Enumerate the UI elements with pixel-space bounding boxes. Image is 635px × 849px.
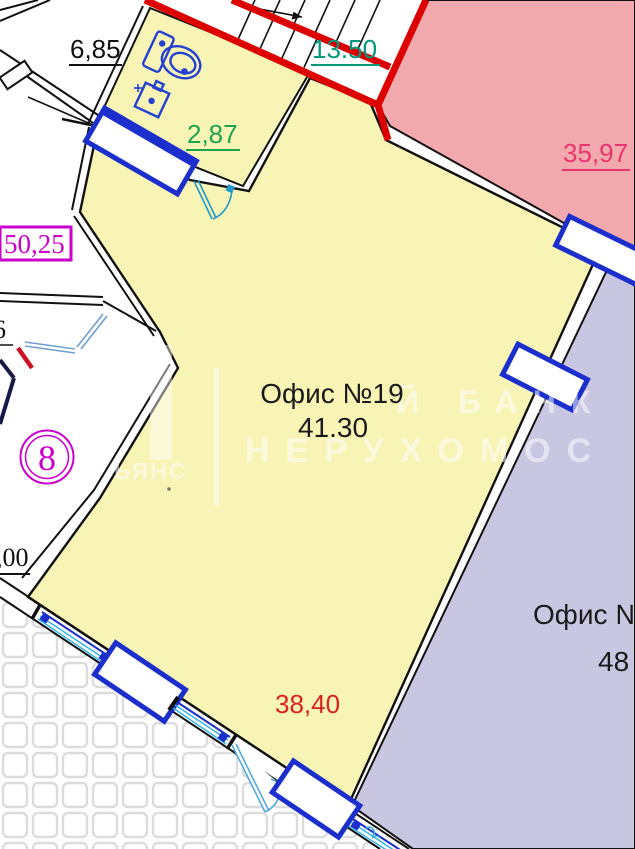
dim-top-left-room: 6,85 <box>70 34 121 64</box>
watermark-line1: Й БАНК <box>396 384 605 420</box>
dim-partial-small: 6 <box>0 315 6 344</box>
red-wall-segment <box>18 348 32 368</box>
unit-number-badge: 8 <box>21 431 74 484</box>
dim-bottom: 38,40 <box>275 689 340 719</box>
dim-bathroom: 2,87 <box>187 119 238 149</box>
wall-window-block-top-left <box>0 61 32 89</box>
watermark-logo-column <box>150 345 172 460</box>
watermark-divider <box>214 368 219 505</box>
boxed-area-label: 50,25 <box>0 227 71 260</box>
room-office19-name: Офис №19 <box>260 378 403 409</box>
door-leaf-lines <box>25 314 107 353</box>
dim-stairwell: 13.50 <box>312 34 377 64</box>
dim-partial-left: ,00 <box>0 543 29 572</box>
dark-door-chevron <box>0 360 14 424</box>
unit-number-value: 8 <box>38 438 56 478</box>
dim-pink-room: 35,97 <box>563 138 628 168</box>
room-right-name: Офис № <box>533 599 635 630</box>
room-right-area: 48 <box>598 646 629 677</box>
floor-plan-page: ЬЯНС Й БАНК НЕРУХОМОС 6,85 13.50 2,87 35… <box>0 0 635 849</box>
boxed-area-value: 50,25 <box>4 229 65 259</box>
room-office19-area: 41.30 <box>298 412 368 443</box>
watermark-side-text: ЬЯНС <box>114 458 187 484</box>
floor-plan-canvas: ЬЯНС Й БАНК НЕРУХОМОС 6,85 13.50 2,87 35… <box>0 0 635 849</box>
